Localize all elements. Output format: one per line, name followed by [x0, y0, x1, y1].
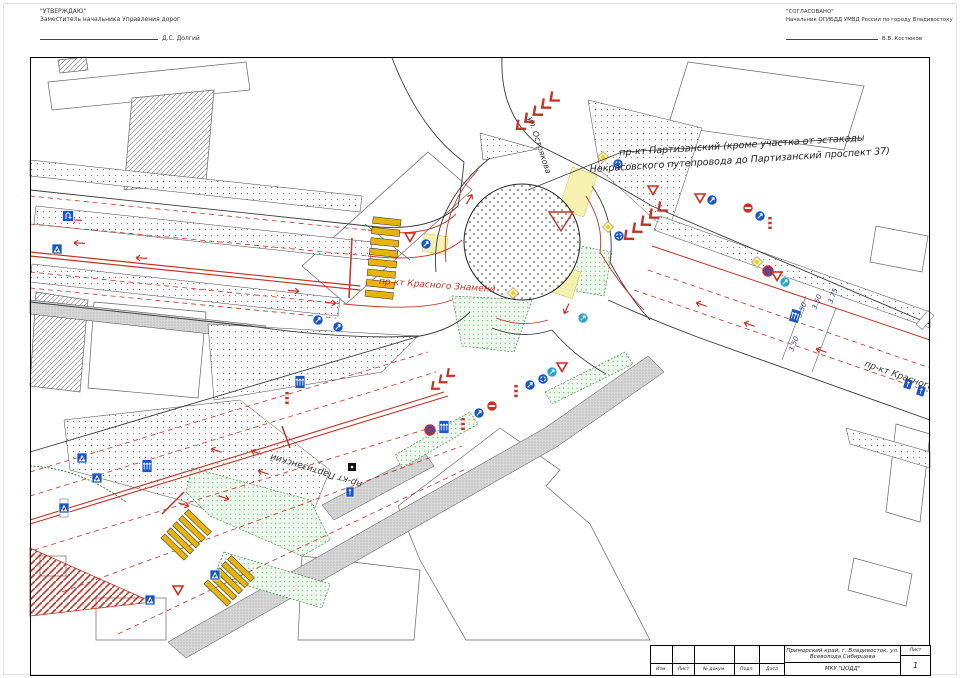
project-location: Приморский край, г. Владивосток, ул. Все…	[785, 646, 900, 663]
detour-sign-icon	[547, 367, 557, 377]
priority-road-sign-icon	[602, 221, 613, 232]
traffic-scheme-canvas: пр-кт Партизанский (кроме участка от эст…	[0, 0, 960, 678]
detour-sign-icon	[780, 277, 790, 287]
col-header-data: Дата	[760, 664, 784, 675]
dimension-value: 3.50	[787, 335, 800, 353]
col-header-list: Лист	[673, 664, 694, 675]
roundabout-island	[464, 184, 580, 300]
barrier-post-icon	[461, 418, 464, 430]
lane-directions-sign-icon	[142, 460, 152, 473]
no-entry-sign-icon	[487, 401, 497, 411]
no-stopping-sign-icon	[425, 425, 435, 435]
no-stopping-sign-icon	[763, 266, 773, 276]
blue-sign-icon	[346, 487, 354, 497]
pedestrian-crossing-sign-icon	[145, 595, 155, 605]
sheet-number: 1	[901, 656, 930, 675]
signature-line	[786, 33, 878, 40]
building	[870, 226, 928, 272]
pedestrian-crossing-sign-icon	[210, 570, 220, 580]
detour-sign-icon	[578, 313, 588, 323]
approval-stamp: "УТВЕРЖДАЮ"	[40, 8, 270, 16]
title-block-cell-empty	[695, 646, 734, 664]
zebra-crossing	[161, 509, 211, 560]
title-block-col-podp: Подп.	[735, 646, 760, 675]
barrier-post-icon	[768, 217, 771, 229]
title-block-cell-empty	[760, 646, 784, 664]
pedestrian-crossing-sign-icon	[52, 244, 62, 254]
col-header-podp: Подп.	[735, 664, 759, 675]
keep-right-sign-icon	[333, 322, 343, 332]
yield-sign-icon	[695, 194, 705, 203]
title-block-main: Приморский край, г. Владивосток, ул. Все…	[785, 646, 901, 675]
pedestrian-crossing-sign-icon	[59, 503, 69, 513]
keep-right-sign-icon	[474, 408, 484, 418]
approval-signee: Д.С. Долгий	[162, 35, 200, 42]
col-header-doc: № докум.	[695, 664, 734, 675]
lane-directions-sign-icon	[295, 376, 305, 389]
building	[848, 558, 912, 606]
roundabout-sign-icon	[614, 231, 624, 241]
dimension-value: 3.50	[810, 293, 823, 311]
title-block-col-data: Дата	[760, 646, 785, 675]
signature-line	[40, 33, 158, 40]
title-block-cell-empty	[673, 646, 694, 664]
approval-stamp: "СОГЛАСОВАНО"	[786, 8, 936, 16]
sheet-number-cell: Лист 1	[901, 646, 930, 675]
building	[886, 424, 930, 522]
approval-role: Начальник ОГИБДД УМВД России по городу В…	[786, 16, 936, 24]
title-block-col-doc: № докум.	[695, 646, 735, 675]
keep-right-sign-icon	[421, 239, 431, 249]
keep-right-sign-icon	[313, 315, 323, 325]
organization-name: МКУ "ЦОДД"	[785, 663, 900, 675]
keep-right-sign-icon	[525, 380, 535, 390]
u-turn-sign-icon	[63, 211, 74, 222]
title-block-col-list: Лист	[673, 646, 695, 675]
approval-block-right: "СОГЛАСОВАНО" Начальник ОГИБДД УМВД Росс…	[786, 8, 936, 43]
title-block-col-izm: Изм.	[651, 646, 673, 675]
approval-block-left: "УТВЕРЖДАЮ" Заместитель начальника Управ…	[40, 8, 270, 43]
pedestrian-crossing-sign-icon	[92, 473, 102, 483]
keep-right-sign-icon	[755, 211, 765, 221]
col-header-izm: Изм.	[651, 664, 672, 675]
dimension-value: 3.50	[795, 301, 808, 319]
barrier-post-icon	[285, 392, 288, 404]
street-label-ostryakova: ул. Острякова	[526, 115, 553, 175]
title-block-cell-empty	[651, 646, 672, 664]
sheet-label: Лист	[901, 646, 930, 656]
title-block-cell-empty	[735, 646, 759, 664]
approval-role: Заместитель начальника Управления дорог	[40, 16, 270, 24]
yield-sign-icon	[557, 363, 567, 372]
pedestrian-crossing-sign-icon	[77, 453, 87, 463]
roundabout-sign-icon	[538, 374, 548, 384]
keep-right-sign-icon	[707, 195, 717, 205]
no-entry-sign-icon	[743, 203, 753, 213]
yield-sign-icon	[173, 586, 183, 595]
barrier-post-icon	[514, 385, 517, 397]
building-hatched	[58, 57, 88, 73]
drawing-sheet: пр-кт Партизанский (кроме участка от эст…	[0, 0, 960, 678]
bus-stop-icon	[348, 463, 356, 471]
approval-signee: В.В. Костюков	[882, 36, 922, 42]
title-block: Изм. Лист № докум. Подп. Дата Приморский…	[650, 645, 931, 676]
lane-directions-sign-icon	[439, 421, 449, 434]
street-label-krasnogo-east: пр-кт Красного Знамени	[863, 359, 960, 407]
